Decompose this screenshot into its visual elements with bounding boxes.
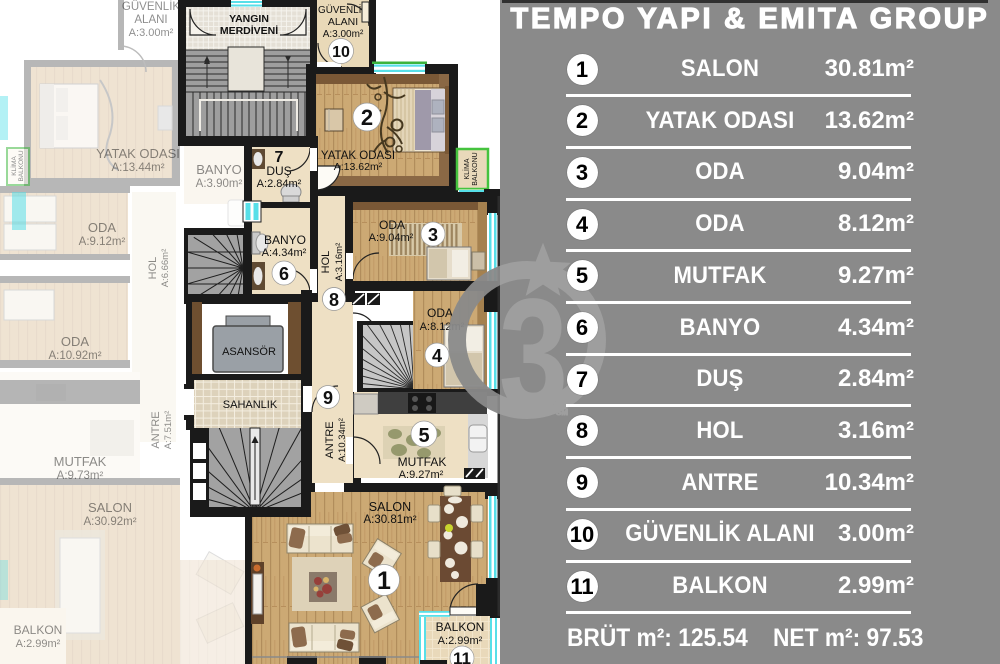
svg-text:SALON: SALON — [369, 500, 411, 514]
svg-text:MERDİVENİ: MERDİVENİ — [220, 24, 278, 37]
svg-text:HOL: HOL — [147, 257, 159, 280]
svg-text:BALKONU: BALKONU — [472, 152, 479, 185]
svg-text:1: 1 — [377, 567, 391, 595]
svg-text:ASANSÖR: ASANSÖR — [222, 346, 276, 358]
svg-text:BALKON: BALKON — [436, 620, 485, 634]
svg-text:ALANI: ALANI — [134, 14, 167, 26]
svg-text:ODA: ODA — [88, 220, 117, 235]
svg-text:SAHANLIK: SAHANLIK — [223, 399, 278, 411]
svg-text:A:3.90m²: A:3.90m² — [196, 178, 243, 190]
svg-text:9: 9 — [323, 388, 333, 408]
svg-text:A:13.62m²: A:13.62m² — [334, 161, 383, 173]
svg-text:A:13.44m²: A:13.44m² — [111, 162, 164, 174]
svg-text:YANGIN: YANGIN — [229, 13, 269, 25]
svg-text:ANTRE: ANTRE — [324, 421, 336, 458]
svg-text:11: 11 — [453, 649, 471, 664]
svg-text:A:30.92m²: A:30.92m² — [83, 516, 136, 528]
svg-text:ANTRE: ANTRE — [150, 411, 162, 448]
svg-text:A:30.81m²: A:30.81m² — [363, 514, 416, 526]
svg-text:BALKONU: BALKONU — [18, 150, 25, 181]
svg-text:BALKON: BALKON — [14, 623, 63, 637]
svg-text:A:3.00m²: A:3.00m² — [323, 29, 364, 40]
svg-text:A:7.51m²: A:7.51m² — [163, 411, 174, 450]
svg-text:BANYO: BANYO — [196, 162, 242, 177]
svg-text:8: 8 — [329, 290, 339, 310]
svg-text:KLİMA: KLİMA — [462, 158, 471, 179]
svg-text:2: 2 — [361, 105, 373, 130]
svg-text:10: 10 — [332, 44, 350, 61]
svg-text:HOL: HOL — [320, 251, 332, 274]
svg-text:ALANI: ALANI — [328, 16, 358, 28]
svg-text:BANYO: BANYO — [264, 233, 306, 247]
svg-text:MUTFAK: MUTFAK — [398, 455, 447, 469]
svg-text:YATAK ODASI: YATAK ODASI — [96, 146, 180, 161]
svg-text:A:9.12m²: A:9.12m² — [79, 236, 126, 248]
svg-text:KLİMA: KLİMA — [9, 156, 18, 176]
svg-text:A:6.66m²: A:6.66m² — [160, 249, 171, 288]
svg-text:6: 6 — [279, 264, 289, 284]
svg-text:ODA: ODA — [379, 218, 405, 232]
svg-text:A:2.99m²: A:2.99m² — [438, 635, 483, 647]
svg-text:GÜVENLİK: GÜVENLİK — [122, 0, 180, 13]
svg-text:GÜVENLİK: GÜVENLİK — [318, 3, 368, 16]
svg-text:MUTFAK: MUTFAK — [54, 454, 107, 469]
svg-text:A:3.16m²: A:3.16m² — [334, 243, 345, 282]
svg-text:A:4.34m²: A:4.34m² — [262, 247, 307, 259]
svg-text:A:2.84m²: A:2.84m² — [257, 178, 302, 190]
svg-text:A:3.00m²: A:3.00m² — [129, 27, 174, 39]
svg-text:A:9.73m²: A:9.73m² — [57, 470, 104, 482]
svg-text:SALON: SALON — [88, 500, 132, 515]
svg-text:A:9.27m²: A:9.27m² — [399, 469, 444, 481]
svg-text:DUŞ: DUŞ — [266, 164, 291, 178]
svg-text:A:2.99m²: A:2.99m² — [16, 638, 61, 650]
svg-text:ODA: ODA — [61, 334, 90, 349]
svg-text:A:9.04m²: A:9.04m² — [369, 232, 414, 244]
svg-text:5: 5 — [418, 425, 429, 447]
svg-text:A:10.92m²: A:10.92m² — [48, 350, 101, 362]
